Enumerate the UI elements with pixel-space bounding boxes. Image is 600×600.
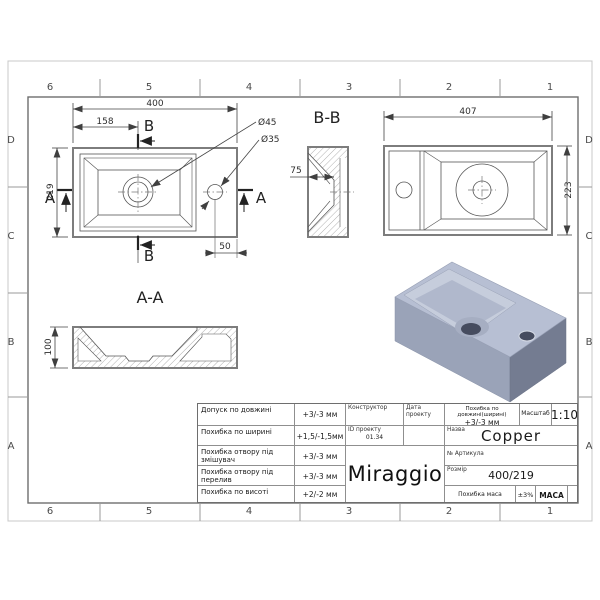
brand-logo: Miraggio xyxy=(348,462,443,486)
size-value: 400/219 xyxy=(488,469,534,482)
overflow-hole xyxy=(396,182,412,198)
section-b-label-bottom: B xyxy=(144,247,154,265)
section-a-marks: A A xyxy=(45,189,267,212)
tolerance-label: Допуск по довжині xyxy=(198,404,294,425)
grid-column-label: 5 xyxy=(139,506,159,517)
section-bb-view: B-B 75 xyxy=(290,108,354,237)
grid-column-label: 5 xyxy=(139,82,159,93)
grid-column-label: 6 xyxy=(40,506,60,517)
tolerance-value: +2/-2 мм xyxy=(294,485,345,502)
grid-column-label: 6 xyxy=(40,82,60,93)
bottom-view: 407 223 xyxy=(384,107,574,235)
section-b-marks: B B xyxy=(138,117,155,265)
drawing-sheet: { "sheet": { "grid_columns": ["6", "5", … xyxy=(0,0,600,600)
grid-column-label: 1 xyxy=(540,82,560,93)
scale-value: 1:10 xyxy=(551,404,577,425)
dim-400: 400 xyxy=(146,99,163,109)
grid-row-label: A xyxy=(582,441,596,452)
length-tolerance-value: +3/-3 мм xyxy=(445,418,519,425)
dim-407: 407 xyxy=(459,107,476,117)
grid-row-label: C xyxy=(582,231,596,242)
render-drain-hole xyxy=(461,323,481,335)
grid-column-label: 4 xyxy=(239,82,259,93)
section-aa-title: A-A xyxy=(137,288,164,307)
dim-223: 223 xyxy=(564,181,574,198)
grid-row-label: B xyxy=(582,337,596,348)
mass-value-cell xyxy=(567,485,577,502)
mass-label: МАСА xyxy=(535,485,567,502)
grid-row-label: B xyxy=(4,337,18,348)
project-id-cell: ID проекту 01.34 xyxy=(345,425,403,445)
tolerance-value: +3/-3 мм xyxy=(294,445,345,465)
size-label: Розмір xyxy=(447,467,467,473)
render-3d xyxy=(395,262,566,402)
engineering-drawing: .dim{font-family:"DejaVu Sans",sans-seri… xyxy=(0,0,600,600)
tolerance-label: Похибка по висоті xyxy=(198,485,294,502)
size-cell: Розмір 400/219 xyxy=(444,465,577,485)
grid-column-label: 2 xyxy=(439,506,459,517)
project-id-value: 01.34 xyxy=(346,434,403,441)
grid-row-label: A xyxy=(4,441,18,452)
dim-50: 50 xyxy=(219,242,231,252)
length-tolerance-cell: Похибка по довжині(ширині) +3/-3 мм xyxy=(444,404,519,425)
dim-faucet-diameter: Ø35 xyxy=(261,134,280,145)
grid-row-label: D xyxy=(582,135,596,146)
tolerance-value: +1,5/-1,5мм xyxy=(294,425,345,445)
name-label: Назва xyxy=(447,427,465,433)
top-view: B B A A 400 158 219 xyxy=(45,99,280,265)
project-id-label: ID проекту xyxy=(346,426,403,434)
grid-column-label: 1 xyxy=(540,506,560,517)
grid-column-label: 3 xyxy=(339,506,359,517)
mass-tolerance-label: Похибка маса xyxy=(444,485,515,502)
title-block: Допуск по довжині +3/-3 мм Похибка по ши… xyxy=(197,403,578,503)
section-aa-view: A-A 100 xyxy=(44,288,237,368)
grid-column-label: 4 xyxy=(239,506,259,517)
constructor-label: Конструктор xyxy=(345,404,403,425)
brand-cell: Miraggio xyxy=(345,445,444,502)
article-label: № Артикула xyxy=(447,451,484,457)
mass-tolerance-value: ±3% xyxy=(515,485,535,502)
scale-label: Масштаб xyxy=(519,404,551,425)
grid-column-label: 2 xyxy=(439,82,459,93)
render-faucet-hole xyxy=(519,331,535,341)
name-cell: Назва Copper xyxy=(444,425,577,445)
grid-column-label: 3 xyxy=(339,82,359,93)
grid-row-label: D xyxy=(4,135,18,146)
section-bb-title: B-B xyxy=(313,108,340,127)
date-value-cell xyxy=(403,425,444,445)
date-label: Дата проекту xyxy=(403,404,444,425)
dim-75: 75 xyxy=(290,166,301,176)
article-cell: № Артикула xyxy=(444,445,577,465)
section-a-label-right: A xyxy=(256,189,267,207)
grid-row-label: C xyxy=(4,231,18,242)
dim-219: 219 xyxy=(46,183,56,200)
top-view-dimensions: 400 158 219 50 Ø45 Ø35 xyxy=(46,99,280,258)
product-name: Copper xyxy=(481,427,541,445)
tolerance-value: +3/-3 мм xyxy=(294,404,345,425)
tolerance-label: Похибка отвору під змішувач xyxy=(198,445,294,465)
tolerance-label: Похибка отвору під перелив xyxy=(198,465,294,485)
length-tolerance-label: Похибка по довжині(ширині) xyxy=(445,406,519,418)
dim-158: 158 xyxy=(96,117,113,127)
dim-drain-diameter: Ø45 xyxy=(258,117,277,128)
tolerance-label: Похибка по ширині xyxy=(198,425,294,445)
dim-100: 100 xyxy=(44,338,54,355)
section-b-label-top: B xyxy=(144,117,154,135)
tolerance-value: +3/-3 мм xyxy=(294,465,345,485)
